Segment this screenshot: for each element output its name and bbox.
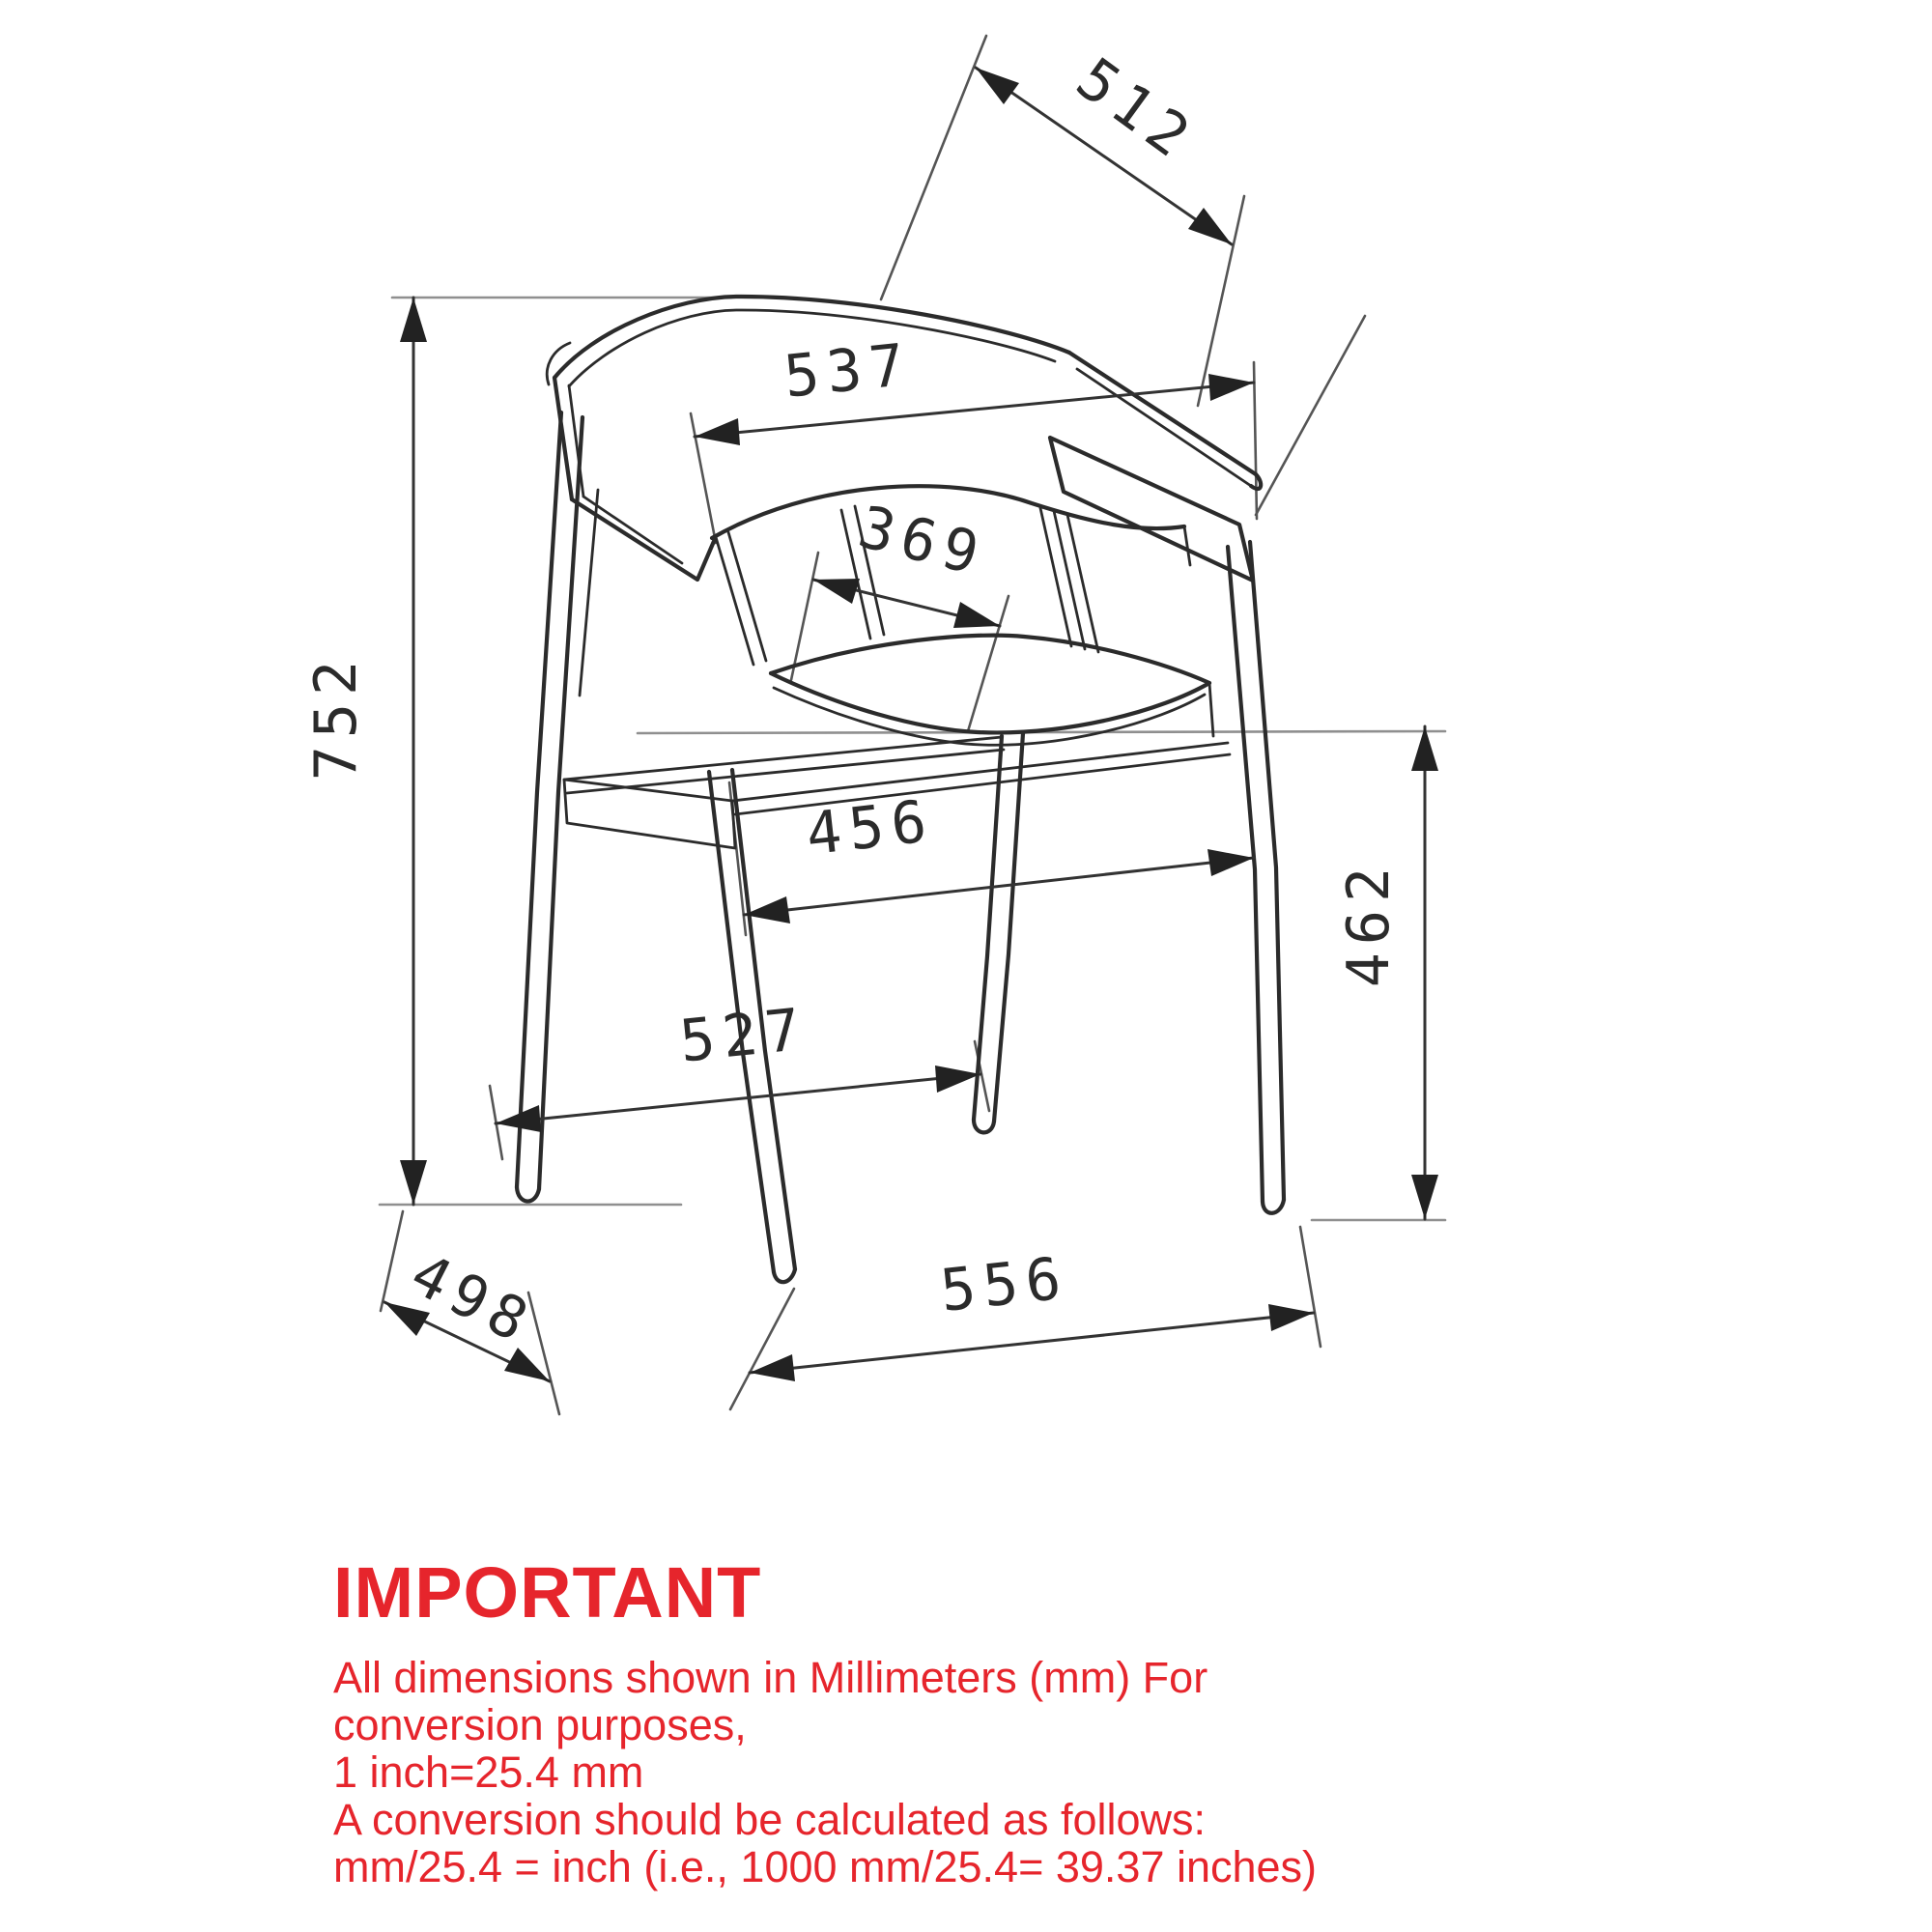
important-note-line: A conversion should be calculated as fol… <box>333 1796 1473 1843</box>
seat <box>771 636 1209 746</box>
chair-drawing <box>517 297 1284 1282</box>
dimension-556: 556 <box>750 1244 1314 1381</box>
important-note-line: All dimensions shown in Millimeters (mm)… <box>333 1654 1473 1701</box>
dim-label-752: 752 <box>302 653 370 781</box>
dimension-537: 537 <box>695 331 1254 445</box>
dim-label-462: 462 <box>1335 860 1403 987</box>
dim-label-512: 512 <box>1065 45 1207 175</box>
dimension-512: 512 <box>976 45 1232 244</box>
dim-label-537: 537 <box>781 331 916 412</box>
drawing-page: 752 512 537 369 456 <box>0 0 1932 1932</box>
dim-label-369: 369 <box>852 494 992 590</box>
dimension-462: 462 <box>1335 726 1438 1219</box>
dim-label-456: 456 <box>803 787 937 868</box>
important-note-line: mm/25.4 = inch (i.e., 1000 mm/25.4= 39.3… <box>333 1843 1473 1890</box>
dim-label-498: 498 <box>400 1240 545 1358</box>
dim-label-556: 556 <box>937 1244 1071 1325</box>
important-notice: IMPORTANT All dimensions shown in Millim… <box>333 1557 1473 1890</box>
dim-label-527: 527 <box>677 996 811 1076</box>
dimension-498: 498 <box>384 1240 550 1381</box>
rear-left-leg <box>517 412 598 1202</box>
dimension-752: 752 <box>302 298 427 1205</box>
important-note-line: conversion purposes, <box>333 1701 1473 1748</box>
front-right-leg <box>1228 542 1284 1213</box>
important-title: IMPORTANT <box>333 1557 1473 1629</box>
dimension-527: 527 <box>496 996 980 1132</box>
important-note-line: 1 inch=25.4 mm <box>333 1748 1473 1796</box>
